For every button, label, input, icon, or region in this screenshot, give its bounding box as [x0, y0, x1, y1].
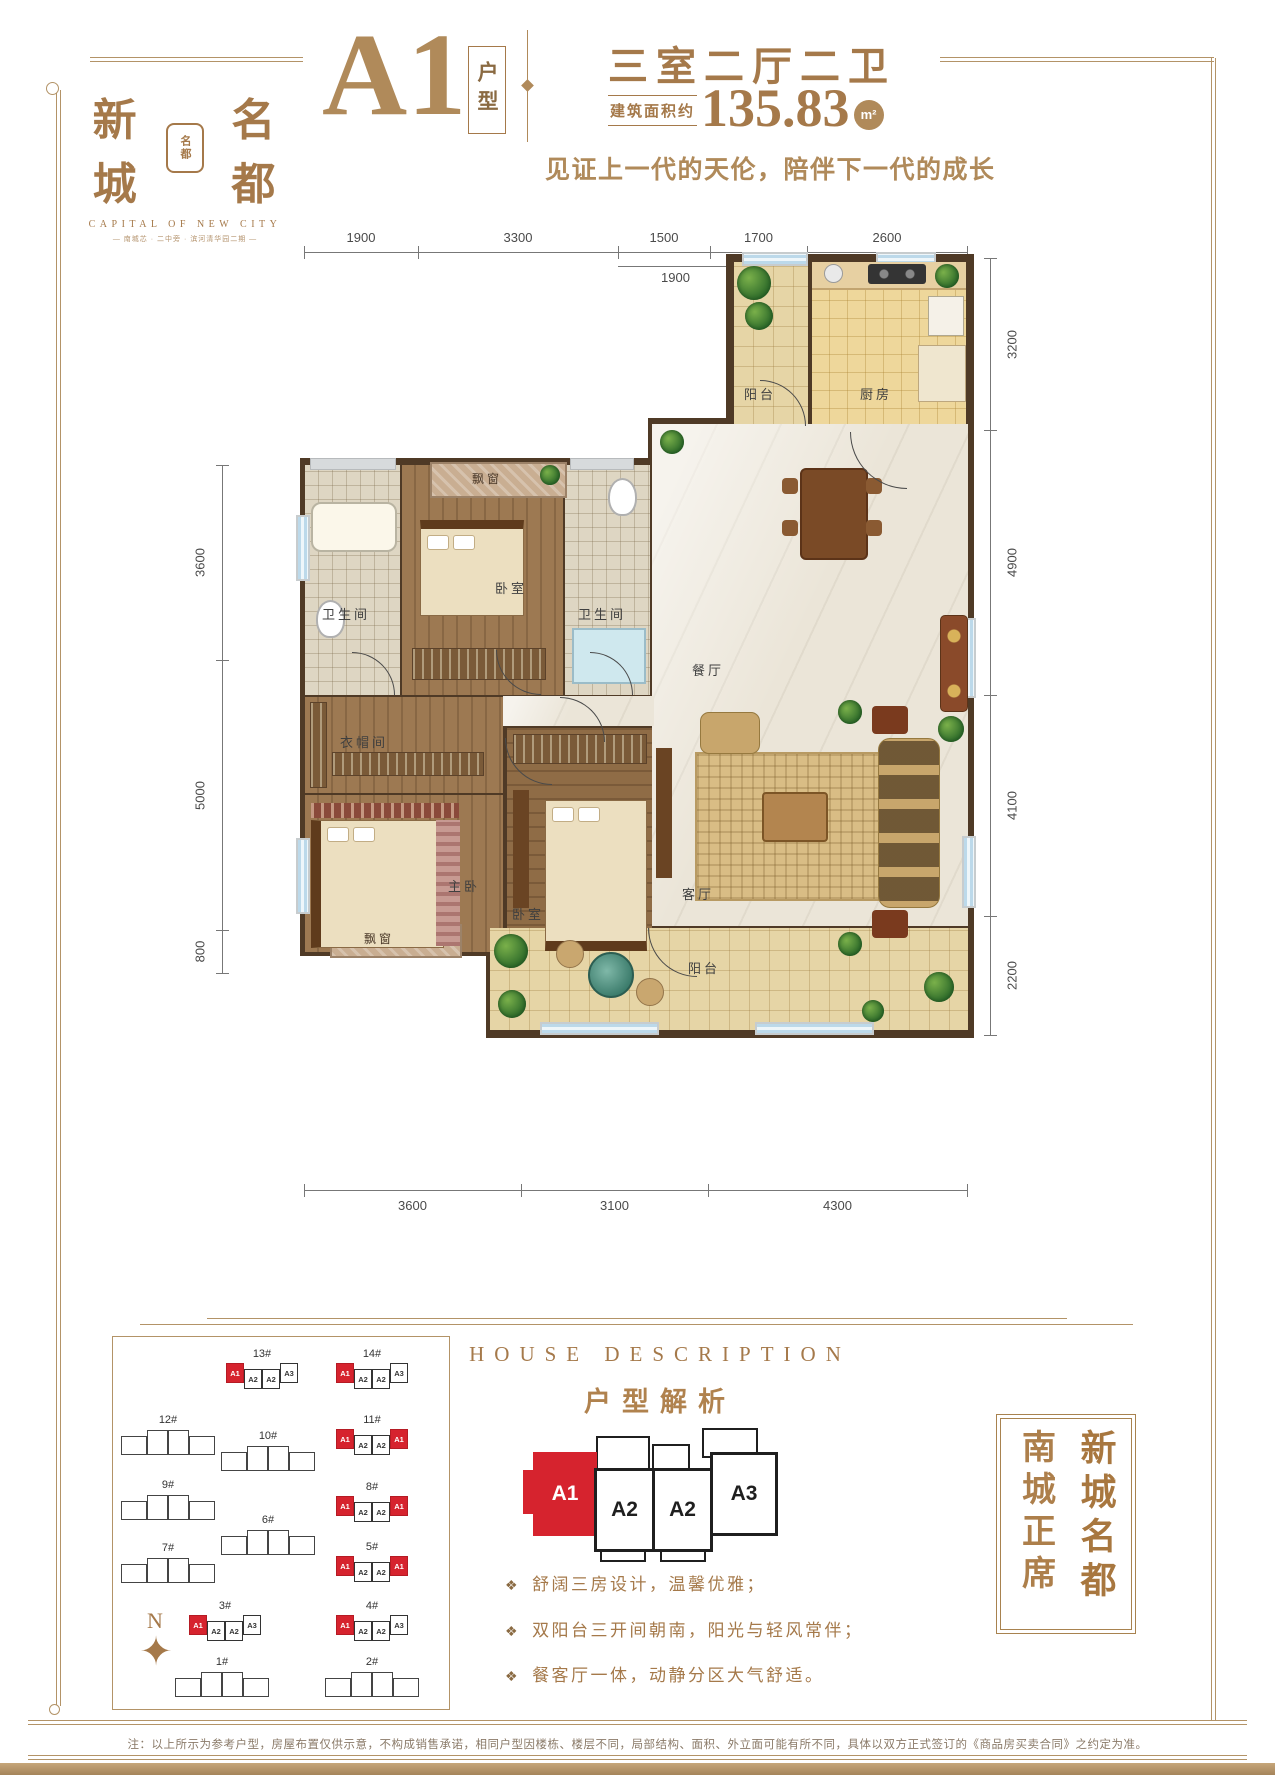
fridge-icon	[928, 296, 964, 336]
dim-right-1: 3200	[1005, 315, 1020, 375]
plant-icon	[737, 266, 771, 300]
label-bedroom-top: 卧室	[495, 578, 527, 597]
vertical-banner: 南城正席 新城名都	[996, 1414, 1136, 1634]
building-units: A1 A2 A2 A1	[322, 1429, 422, 1455]
unit-diagram-a2b: A2	[652, 1468, 713, 1552]
unit-cell: A2	[372, 1369, 390, 1389]
dim-line-top	[304, 252, 967, 253]
dim-left-2: 5000	[193, 766, 208, 826]
unit-code-suffix-box: 户型	[468, 46, 506, 134]
unit-cell: A3	[390, 1363, 408, 1383]
bullet-text: 舒阔三房设计，温馨优雅；	[532, 1575, 766, 1594]
unit-cell: A2	[354, 1435, 372, 1455]
console-cabinet	[940, 615, 968, 712]
dim-tick	[304, 1184, 305, 1197]
plant-icon	[862, 1000, 884, 1022]
dim-top-1: 1900	[304, 230, 418, 245]
label-living: 客厅	[682, 884, 714, 903]
description-bullet-3: ❖餐客厅一体，动静分区大气舒适。	[505, 1661, 825, 1686]
room-cloakroom	[305, 697, 503, 793]
building-8: 8# A1 A2 A2 A1	[322, 1477, 422, 1522]
unit-cell: A2	[262, 1369, 280, 1389]
frame-corner-ornament-top	[46, 82, 59, 95]
unit-cell: A2	[354, 1621, 372, 1641]
building-2: 2#	[322, 1652, 422, 1697]
plant-icon	[838, 932, 862, 956]
building-14: 14# A1 A2 A2 A3	[322, 1344, 422, 1389]
vertical-banner-inner: 南城正席 新城名都	[1000, 1418, 1132, 1630]
window-master	[296, 838, 310, 914]
building-10: 10#	[218, 1426, 318, 1471]
area-unit-badge: m²	[854, 100, 884, 130]
plant-icon	[540, 465, 560, 485]
wall-light-top2	[570, 458, 634, 470]
dim-tick	[521, 1184, 522, 1197]
dim-tick	[618, 246, 619, 259]
unit-cell: A2	[372, 1435, 390, 1455]
building-units: A1 A2 A2 A3	[212, 1363, 312, 1389]
dim-line-right	[990, 258, 991, 1035]
unit-cell: A1	[390, 1556, 408, 1576]
label-bedroom2: 卧室	[512, 904, 544, 923]
footer-line-top	[28, 1720, 1247, 1725]
brand-logo-row: 新城 名都 名都	[70, 84, 300, 212]
description-heading-en: HOUSE DESCRIPTION	[469, 1342, 851, 1366]
building-units: A1 A2 A2 A1	[322, 1496, 422, 1522]
dining-chair	[866, 520, 882, 536]
slogan: 见证上一代的天伦，陪伴下一代的成长	[545, 150, 996, 186]
building-12: 12#	[118, 1410, 218, 1455]
building-outline	[322, 1672, 422, 1697]
building-units: A1 A2 A2 A3	[175, 1615, 275, 1641]
building-outline	[218, 1530, 318, 1555]
footer-line-bottom	[28, 1755, 1247, 1760]
brand-right-text: 名都	[209, 84, 300, 212]
window-living	[962, 836, 976, 908]
dim-tick	[710, 246, 711, 259]
brand-seal-icon: 名都	[166, 123, 204, 173]
building-9: 9#	[118, 1475, 218, 1520]
balcony-table	[588, 952, 634, 998]
dim-tick	[216, 973, 229, 974]
dining-chair	[782, 478, 798, 494]
unit-diagram-a3: A3	[710, 1452, 778, 1536]
dim-tick	[216, 930, 229, 931]
unit-cell: A2	[244, 1369, 262, 1389]
dresser-bedroom2	[513, 790, 529, 908]
dim-right-4: 2200	[1005, 946, 1020, 1006]
bullet-text: 餐客厅一体，动静分区大气舒适。	[532, 1666, 825, 1685]
unit-cell: A3	[243, 1615, 261, 1635]
dim-tick	[216, 465, 229, 466]
building-name: 8#	[366, 1481, 378, 1493]
unit-cell: A2	[207, 1621, 225, 1641]
dim-line-left	[222, 465, 223, 973]
building-units: A1 A2 A2 A3	[322, 1615, 422, 1641]
dim-top-2: 3300	[418, 230, 618, 245]
unit-cell: A1	[189, 1615, 207, 1635]
building-name: 4#	[366, 1600, 378, 1612]
bed-bedroom2	[545, 800, 647, 951]
unit-cell: A1	[336, 1363, 354, 1383]
brand-logo: 新城 名都 名都 CAPITAL OF NEW CITY — 南城芯 · 二中旁…	[70, 84, 300, 244]
master-bed-valance	[311, 803, 459, 818]
dim-tick	[984, 258, 997, 259]
building-name: 1#	[216, 1656, 228, 1668]
unit-cell: A1	[336, 1556, 354, 1576]
sink-icon	[824, 264, 843, 283]
unit-diagram-a1: A1	[533, 1452, 597, 1536]
building-6: 6#	[218, 1510, 318, 1555]
building-3: 3# A1 A2 A2 A3	[175, 1596, 275, 1641]
dining-chair	[782, 520, 798, 536]
unit-cell: A2	[372, 1562, 390, 1582]
dim-line-top-sub	[618, 266, 733, 267]
frame-left-line	[56, 90, 61, 1706]
label-bay-top: 飘窗	[472, 470, 502, 487]
dim-tick	[304, 246, 305, 259]
label-cloakroom: 衣帽间	[340, 732, 388, 751]
area-prefix: 建筑面积约	[608, 95, 697, 126]
balcony-chair	[636, 978, 664, 1006]
dim-top-3: 1500	[618, 230, 710, 245]
building-outline	[218, 1446, 318, 1471]
side-table	[872, 910, 908, 938]
window-balcony-bottom2	[755, 1022, 874, 1035]
description-bullet-2: ❖双阳台三开间朝南，阳光与轻风常伴；	[505, 1616, 864, 1641]
bullet-text: 双阳台三开间朝南，阳光与轻风常伴；	[532, 1621, 864, 1640]
banner-text-right: 新城名都	[1070, 1429, 1122, 1619]
dim-tick	[984, 1035, 997, 1036]
dim-tick	[708, 1184, 709, 1197]
dim-tick	[984, 695, 997, 696]
plant-icon	[838, 700, 862, 724]
unit-cell: A1	[336, 1429, 354, 1449]
dim-top-sub: 1900	[618, 270, 733, 285]
unit-cell: A2	[354, 1502, 372, 1522]
unit-code-suffix: 户型	[472, 61, 502, 119]
plant-icon	[938, 716, 964, 742]
dim-tick	[216, 660, 229, 661]
building-name: 5#	[366, 1541, 378, 1553]
building-outline	[118, 1558, 218, 1583]
building-outline	[118, 1495, 218, 1520]
building-7: 7#	[118, 1538, 218, 1583]
brand-sub-tagline: — 南城芯 · 二中旁 · 滨河清华园二期 —	[70, 234, 300, 244]
label-balcony-top: 阳台	[744, 384, 776, 403]
dim-bottom-2: 3100	[521, 1198, 708, 1213]
label-bath1: 卫生间	[322, 604, 370, 623]
building-name: 9#	[162, 1479, 174, 1491]
plant-icon	[660, 430, 684, 454]
toilet-icon	[608, 478, 637, 516]
building-name: 2#	[366, 1656, 378, 1668]
building-1: 1#	[172, 1652, 272, 1697]
unit-cell: A1	[390, 1496, 408, 1516]
section-divider-line2	[140, 1324, 1133, 1325]
dim-bottom-1: 3600	[304, 1198, 521, 1213]
dining-table	[800, 468, 868, 560]
coffee-table	[762, 792, 828, 842]
plant-icon	[498, 990, 526, 1018]
dim-right-3: 4100	[1005, 776, 1020, 836]
diamond-bullet-icon: ❖	[505, 1579, 520, 1594]
unit-cell: A3	[390, 1615, 408, 1635]
unit-cell: A2	[372, 1502, 390, 1522]
diamond-bullet-icon: ❖	[505, 1625, 520, 1640]
label-bay-bottom: 飘窗	[364, 930, 394, 947]
unit-cell: A1	[226, 1363, 244, 1383]
building-name: 10#	[259, 1430, 277, 1442]
building-outline	[118, 1430, 218, 1455]
unit-cell: A2	[372, 1621, 390, 1641]
label-balcony-bottom: 阳台	[688, 958, 720, 977]
window-bath1	[296, 515, 310, 581]
header-divider-diamond-icon	[521, 79, 534, 92]
unit-cell: A1	[336, 1615, 354, 1635]
frame-right-line	[1211, 58, 1216, 1720]
window-balcony-top	[742, 252, 808, 266]
description-heading-en-wrap: HOUSE DESCRIPTION	[420, 1342, 900, 1367]
dim-line-bottom	[304, 1190, 967, 1191]
compass: N ✦	[126, 1608, 186, 1670]
frame-corner-ornament-bottom	[49, 1704, 60, 1715]
dim-tick	[984, 430, 997, 431]
building-name: 12#	[159, 1414, 177, 1426]
dim-left-3: 800	[193, 922, 208, 982]
building-name: 13#	[253, 1348, 271, 1360]
sofa	[878, 738, 940, 908]
bed-bedroom-top	[420, 520, 524, 616]
dim-bottom-3: 4300	[708, 1198, 967, 1213]
dim-top-4: 1700	[710, 230, 807, 245]
building-units: A1 A2 A2 A1	[322, 1556, 422, 1582]
area-row: 建筑面积约 135.83 m²	[608, 86, 884, 132]
building-5: 5# A1 A2 A2 A1	[322, 1537, 422, 1582]
label-bath2: 卫生间	[578, 604, 626, 623]
plant-icon	[745, 302, 773, 330]
dim-right-2: 4900	[1005, 533, 1020, 593]
section-divider-line1	[207, 1318, 1067, 1319]
building-units: A1 A2 A2 A3	[322, 1363, 422, 1389]
dim-tick	[984, 916, 997, 917]
building-outline	[172, 1672, 272, 1697]
dim-tick	[967, 1184, 968, 1197]
building-11: 11# A1 A2 A2 A1	[322, 1410, 422, 1455]
building-name: 11#	[363, 1414, 381, 1426]
area-value: 135.83	[701, 86, 850, 132]
diamond-bullet-icon: ❖	[505, 1670, 520, 1685]
building-name: 14#	[363, 1348, 381, 1360]
footer-disclaimer: 注：以上所示为参考户型，房屋布置仅供示意，不构成销售承诺，相同户型因楼栋、楼层不…	[0, 1736, 1275, 1752]
unit-cell: A3	[280, 1363, 298, 1383]
description-heading-cn-wrap: 户型解析	[420, 1380, 900, 1419]
label-dining: 餐厅	[692, 660, 724, 679]
bathtub-icon	[311, 502, 397, 552]
plant-icon	[935, 264, 959, 288]
cloak-shelf-left	[310, 702, 327, 788]
brand-left-text: 新城	[70, 84, 161, 212]
brand-english: CAPITAL OF NEW CITY	[70, 219, 300, 230]
compass-star-icon: ✦	[126, 1634, 186, 1670]
unit-cell: A2	[354, 1369, 372, 1389]
side-table	[872, 706, 908, 734]
kitchen-cabinet	[918, 345, 966, 402]
banner-text-left: 南城正席	[1011, 1429, 1060, 1619]
frame-top-left-line	[90, 57, 303, 62]
unit-cell: A1	[336, 1496, 354, 1516]
building-name: 6#	[262, 1514, 274, 1526]
label-kitchen: 厨房	[860, 384, 892, 403]
plant-icon	[924, 972, 954, 1002]
unit-cell: A2	[354, 1562, 372, 1582]
cloak-shelf	[332, 752, 484, 776]
plant-icon	[494, 934, 528, 968]
bed-master	[311, 820, 444, 948]
building-name: 7#	[162, 1542, 174, 1554]
armchair	[700, 712, 760, 754]
brand-seal-text: 名都	[177, 135, 193, 161]
unit-cell: A1	[390, 1429, 408, 1449]
building-name: 3#	[219, 1600, 231, 1612]
wall-light-top1	[310, 458, 396, 470]
unit-code: A1	[322, 16, 466, 134]
window-balcony-bottom1	[540, 1022, 659, 1035]
frame-top-right-line	[940, 57, 1214, 62]
stove-icon	[868, 264, 926, 284]
building-13: 13# A1 A2 A2 A3	[212, 1344, 312, 1389]
balcony-chair	[556, 940, 584, 968]
description-heading-cn: 户型解析	[584, 1387, 736, 1417]
label-master: 主卧	[448, 876, 480, 895]
dim-tick	[418, 246, 419, 259]
building-4: 4# A1 A2 A2 A3	[322, 1596, 422, 1641]
dim-top-5: 2600	[807, 230, 967, 245]
footer-gold-bar	[0, 1763, 1275, 1775]
unit-diagram-a2a: A2	[594, 1468, 655, 1552]
poster-page: 新城 名都 名都 CAPITAL OF NEW CITY — 南城芯 · 二中旁…	[0, 0, 1275, 1775]
unit-cell: A2	[225, 1621, 243, 1641]
dim-left-1: 3600	[193, 533, 208, 593]
description-bullet-1: ❖舒阔三房设计，温馨优雅；	[505, 1570, 766, 1595]
tv-cabinet	[656, 748, 672, 878]
